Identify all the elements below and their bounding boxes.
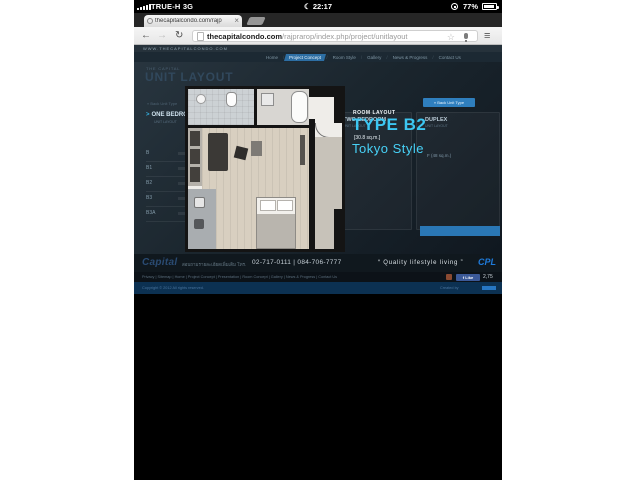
one-bedroom-subtitle: UNIT LAYOUT [154,120,177,124]
unit-layout-page: THE CAPITAL UNIT LAYOUT « Back Unit Type… [134,62,502,254]
copyright-bar: Copyright © 2012 All rights reserved. Cr… [134,282,502,294]
footer-logo[interactable]: Capital [142,257,177,268]
duplex-subtitle: UNIT LAYOUT [425,124,448,128]
reload-button[interactable]: ↻ [175,30,183,42]
door-swing [315,123,330,138]
nav-item-news-progress[interactable]: News & Progress [389,54,432,61]
credit-logo[interactable] [482,286,496,290]
duplex-row-f[interactable]: F (48 sq.m.) [427,153,451,158]
room-style-label: Tokyo Style [352,141,424,156]
credit-text: Created by [440,286,459,290]
tv-console [300,135,305,165]
time-label: 22:17 [313,2,332,11]
site-url-header: WWW.THECAPITALCONDO.COM [134,45,502,52]
toilet [226,92,237,107]
sofa [208,133,228,171]
moon-icon: ☾ [304,2,311,11]
browser-toolbar: ← → ↻ thecapitalcondo.com/rajprarop/inde… [134,27,502,45]
browser-tab-strip: thecapitalcondo.com/rajp × [134,13,502,27]
footer-brand-logo[interactable]: CPL [478,257,496,267]
basin [196,94,206,104]
back-button[interactable]: ← [141,30,151,42]
nav-item-gallery[interactable]: Gallery [363,54,385,61]
nav-item-room-style[interactable]: Room Style [329,54,360,61]
coffee-table [251,141,262,156]
browser-tab[interactable]: thecapitalcondo.com/rajp × [144,15,242,27]
room-type-title: TYPE B2 [352,115,426,135]
url-field[interactable]: thecapitalcondo.com/rajprarop/index.php/… [192,30,478,42]
washer [261,93,274,106]
battery-icon [482,3,497,10]
status-bar: TRUE-H 3G ☾ 22:17 77% [134,0,502,13]
tab-close-icon[interactable]: × [234,18,239,24]
screenshot-canvas: TRUE-H 3G ☾ 22:17 77% thecapitalcondo.co… [0,0,640,480]
url-path: /rajprarop/index.php/project/unitlayout [282,32,408,41]
microphone-icon[interactable] [464,33,468,39]
page-black-area [134,294,502,480]
duplex-panel-footer-bar [420,226,500,236]
battery-percent-label: 77% [463,2,478,11]
forward-button[interactable]: → [157,30,167,42]
footer-contact-text: สอบถามรายละเอียดเพิ่มเติม โทร. [182,261,246,268]
back-unit-type-button[interactable]: « Back Unit Type [423,98,475,107]
pillow [277,200,293,211]
url-domain: thecapitalcondo.com [207,32,282,41]
social-icon[interactable] [446,274,452,280]
bookmark-star-icon[interactable]: ☆ [447,32,455,43]
ipad-screenshot: TRUE-H 3G ☾ 22:17 77% thecapitalcondo.co… [134,0,502,480]
duplex-header[interactable]: DUPLEX [425,117,447,123]
footer-links-row: Privacy | Sitemap | Home | Project Conce… [134,272,502,282]
chevron-right-icon: > [146,112,150,118]
back-unit-type-label[interactable]: « Back Unit Type [147,101,177,106]
stove [194,219,204,229]
sink [194,197,205,208]
bathtub [291,91,308,123]
footer-phone: 02-717-0111 | 084-706-7777 [252,259,341,266]
duplex-panel: DUPLEX UNIT LAYOUT F (48 sq.m.) [416,112,500,230]
tab-title: thecapitalcondo.com/rajp [155,18,232,24]
like-count: 2,75 [483,274,493,280]
orientation-lock-icon [451,3,458,10]
site-footer: Capital สอบถามรายละเอียดเพิ่มเติม โทร. 0… [134,254,502,272]
new-tab-button[interactable] [246,17,266,25]
pillow [260,200,276,211]
copyright-text: Copyright © 2012 All rights reserved. [142,286,204,290]
page-icon [197,32,204,41]
nav-item-project-concept[interactable]: Project Concept [284,54,326,61]
footer-links[interactable]: Privacy | Sitemap | Home | Project Conce… [142,275,337,279]
favicon [147,18,153,24]
footer-slogan: “ Quality lifestyle living ” [378,260,463,266]
clock: ☾ 22:17 [134,2,502,11]
nav-item-home[interactable]: Home [262,54,282,61]
bed [256,197,296,249]
nav-item-contact-us[interactable]: Contact Us [435,54,465,61]
facebook-like-button[interactable]: f Like [456,274,480,281]
floor-plan-image [185,86,345,252]
page-title: UNIT LAYOUT [145,70,233,84]
menu-icon[interactable]: ≡ [484,30,490,42]
site-navbar: Home / Project Concept / Room Style / Ga… [134,52,502,62]
